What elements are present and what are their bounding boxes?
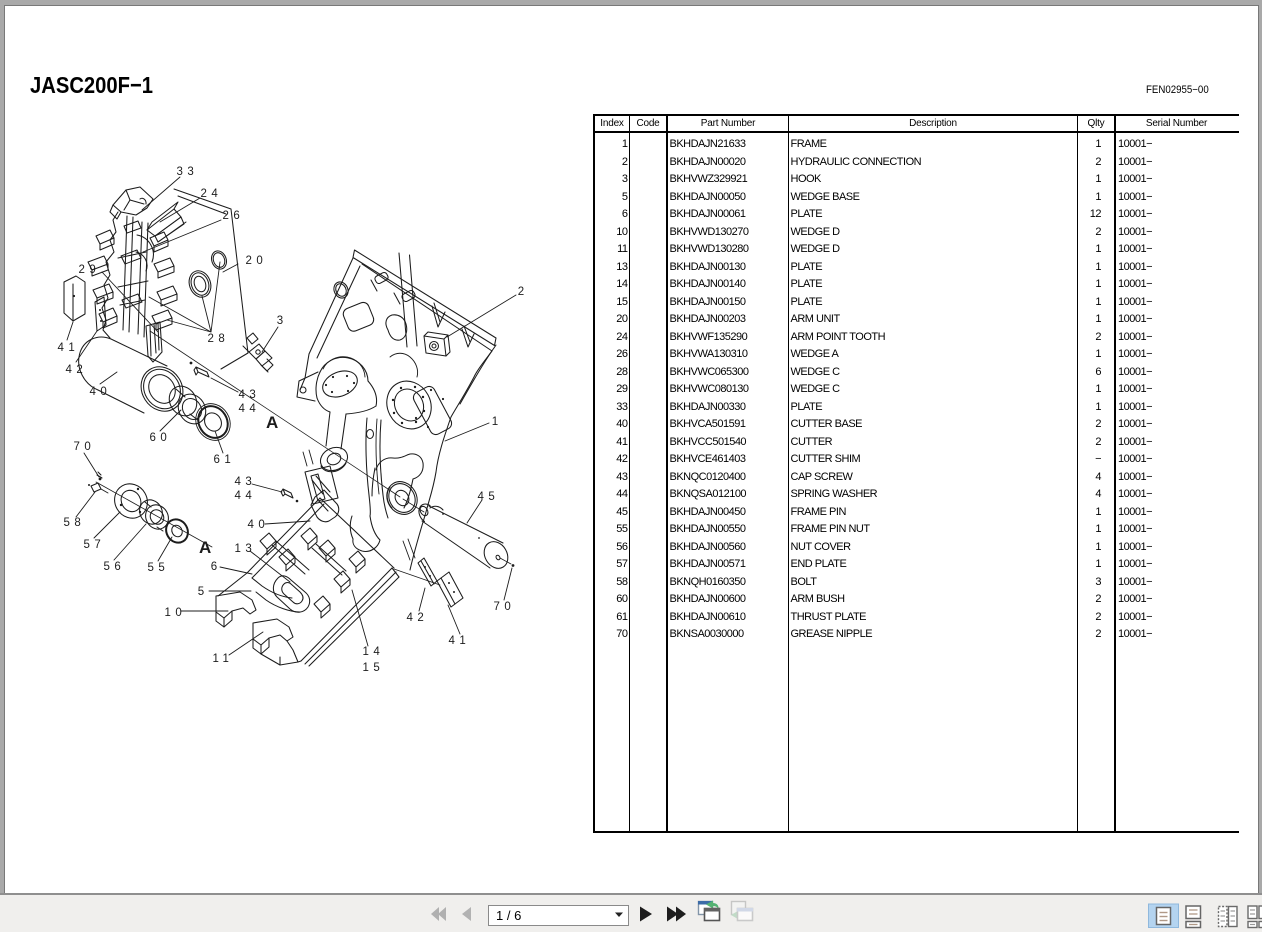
svg-text:33: 33 [177,166,199,178]
svg-text:70: 70 [74,441,96,453]
svg-text:58: 58 [64,517,86,529]
svg-text:40: 40 [90,386,112,398]
svg-text:5: 5 [198,586,209,598]
svg-text:29: 29 [79,264,101,276]
svg-text:43: 43 [239,389,261,401]
svg-text:15: 15 [363,662,385,674]
svg-text:55: 55 [148,562,170,574]
svg-text:57: 57 [84,539,106,551]
svg-text:A: A [266,413,278,432]
svg-text:14: 14 [363,646,385,658]
svg-text:1: 1 [492,416,503,428]
svg-text:40: 40 [248,519,270,531]
svg-text:2: 2 [518,286,529,298]
svg-text:70: 70 [494,601,516,613]
svg-text:44: 44 [235,490,257,502]
svg-text:43: 43 [235,476,257,488]
svg-text:13: 13 [235,543,257,555]
svg-text:44: 44 [239,403,261,415]
svg-text:3: 3 [277,315,288,327]
svg-text:28: 28 [208,333,230,345]
svg-text:1 / 6: 1 / 6 [496,908,521,923]
svg-text:20: 20 [246,255,268,267]
svg-text:56: 56 [104,561,126,573]
svg-text:61: 61 [214,454,236,466]
svg-text:42: 42 [407,612,429,624]
svg-text:26: 26 [223,210,245,222]
svg-text:A: A [199,538,211,557]
svg-text:6: 6 [211,561,222,573]
svg-text:60: 60 [150,432,172,444]
svg-text:11: 11 [213,653,234,665]
svg-text:24: 24 [201,188,223,200]
svg-text:41: 41 [58,342,80,354]
svg-text:45: 45 [478,491,500,503]
svg-text:10: 10 [165,607,187,619]
svg-text:41: 41 [449,635,471,647]
svg-text:42: 42 [66,364,88,376]
